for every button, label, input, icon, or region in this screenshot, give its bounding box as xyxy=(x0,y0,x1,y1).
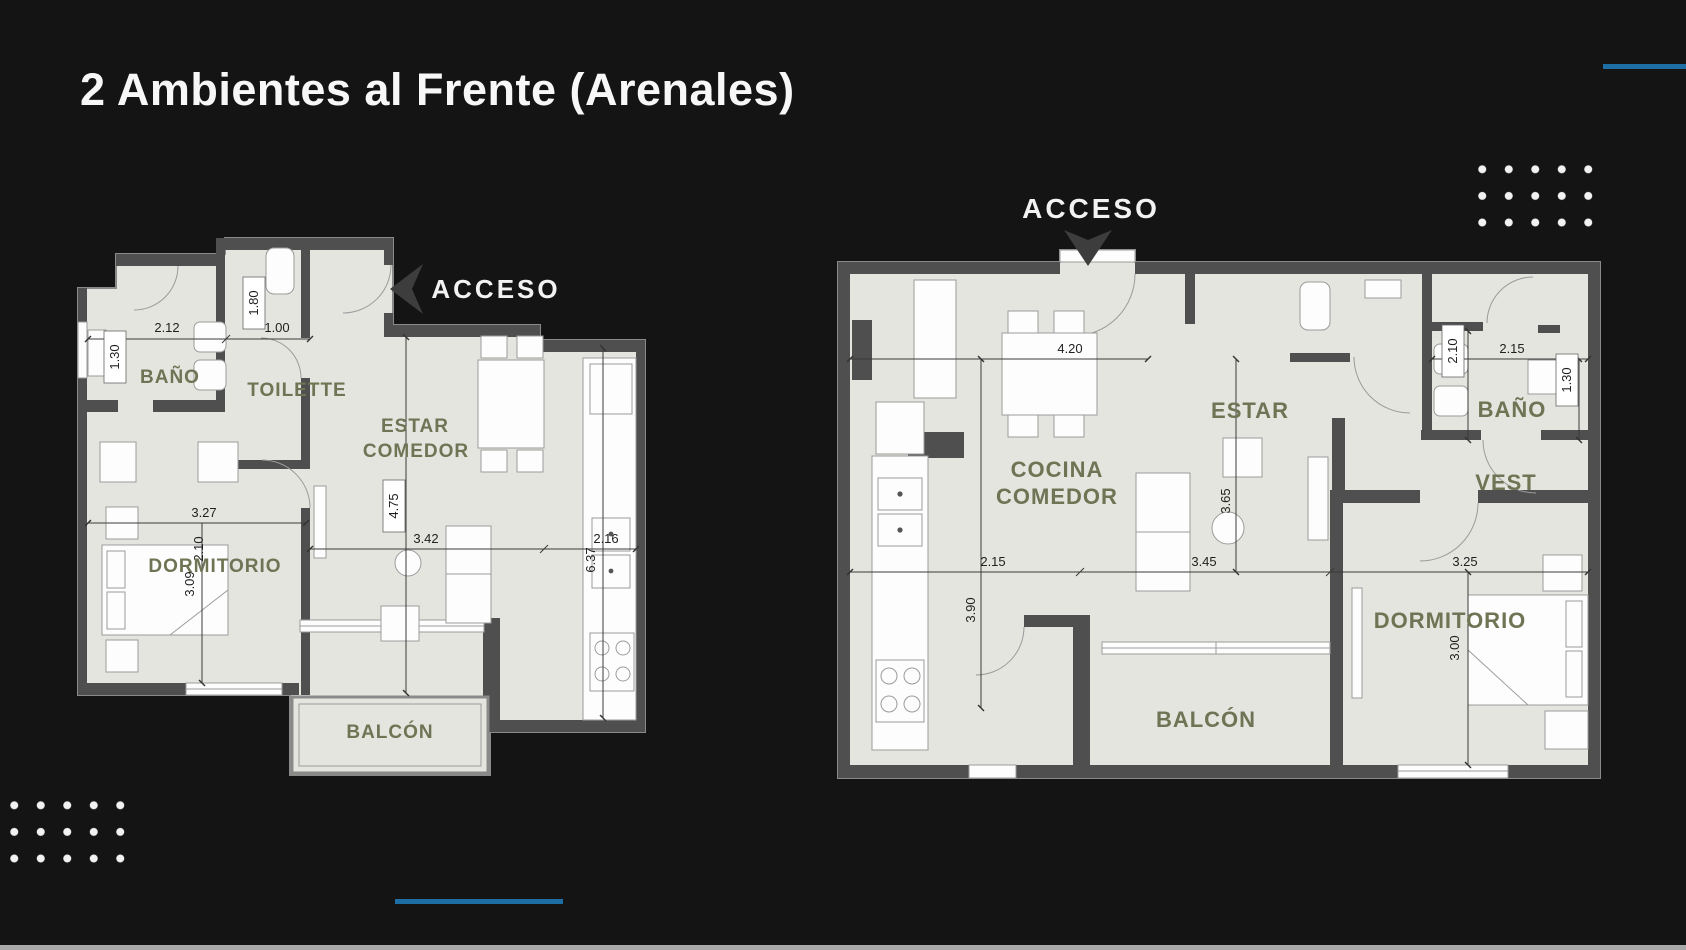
room-label-bano: BAÑO xyxy=(140,366,200,388)
dim-130: 1.30 xyxy=(107,344,122,369)
room-label-estar-line1: ESTAR xyxy=(381,416,449,437)
room-label-balcon: BALCÓN xyxy=(346,721,433,743)
dim-637: 6.37 xyxy=(583,547,598,572)
dim-327: 3.27 xyxy=(191,505,216,520)
room-label-cocina-line1: COCINA xyxy=(1011,457,1104,482)
dim-300: 3.00 xyxy=(1447,635,1462,660)
fridge xyxy=(590,364,632,414)
closet xyxy=(198,442,238,482)
nightstand xyxy=(1543,555,1582,591)
room-label-dormitorio: DORMITORIO xyxy=(1374,608,1527,633)
dim-345: 3.45 xyxy=(1191,554,1216,569)
room-label-cocina-line2: COMEDOR xyxy=(996,484,1118,509)
dim-100: 1.00 xyxy=(264,320,289,335)
nightstand xyxy=(1545,711,1588,749)
acceso-label: ACCESO xyxy=(1022,193,1160,224)
side-table xyxy=(395,550,421,576)
dim-212: 2.12 xyxy=(154,320,179,335)
closet xyxy=(914,280,956,398)
accent-line-top xyxy=(1603,64,1686,69)
kitchen-fixtures xyxy=(872,402,928,750)
fridge xyxy=(876,402,924,454)
dim-390: 3.90 xyxy=(963,597,978,622)
dim-365: 3.65 xyxy=(1218,488,1233,513)
room-label-estar: ESTAR xyxy=(1211,398,1289,423)
wardrobe xyxy=(1352,588,1362,698)
acceso-label: ACCESO xyxy=(431,274,560,304)
room-label-toilette: TOILETTE xyxy=(247,380,346,401)
dim-210: 2.10 xyxy=(1445,338,1460,363)
toilet-icon xyxy=(266,248,294,294)
room-label-dormitorio: DORMITORIO xyxy=(148,556,281,577)
closet xyxy=(100,442,136,482)
armchair xyxy=(381,606,419,641)
dim-130: 1.30 xyxy=(1559,367,1574,392)
page-title: 2 Ambientes al Frente (Arenales) xyxy=(80,64,795,116)
dim-342: 3.42 xyxy=(413,531,438,546)
dim-215: 2.15 xyxy=(980,554,1005,569)
floorplan-right: 4.20 3.65 2.15 3.45 3.25 3.90 2.10 2.15 … xyxy=(838,190,1600,782)
bottom-edge-bar xyxy=(0,945,1686,950)
dim-420: 4.20 xyxy=(1057,341,1082,356)
toilet-icon xyxy=(1300,282,1330,330)
acceso-arrow-left xyxy=(390,264,423,314)
cooktop xyxy=(590,633,634,691)
room-label-balcon: BALCÓN xyxy=(1156,707,1256,732)
dim-215-bano: 2.15 xyxy=(1499,341,1524,356)
accent-line-bottom xyxy=(395,899,563,904)
dim-475: 4.75 xyxy=(386,493,401,518)
nightstand xyxy=(106,640,138,672)
dim-180: 1.80 xyxy=(246,290,261,315)
armchair xyxy=(1223,438,1262,477)
room-label-vest: VEST xyxy=(1475,470,1536,495)
room-label-bano: BAÑO xyxy=(1478,397,1547,422)
room-label-estar-line2: COMEDOR xyxy=(363,441,469,462)
side-table xyxy=(1212,512,1244,544)
dot-grid-bottom-left xyxy=(1,792,134,872)
tv-unit xyxy=(314,486,326,558)
dim-325: 3.25 xyxy=(1452,554,1477,569)
tv-unit xyxy=(1308,457,1328,540)
floorplan-left: 2.12 1.00 2.10 1.80 1.30 3.27 3.09 4.75 … xyxy=(78,218,650,778)
slide: 2 Ambientes al Frente (Arenales) xyxy=(0,0,1686,950)
dim-216: 2.16 xyxy=(593,531,618,546)
